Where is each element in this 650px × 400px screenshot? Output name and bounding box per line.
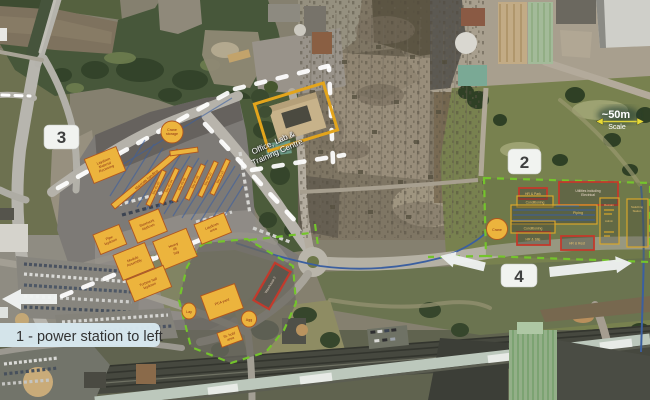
svg-text:HR & Park: HR & Park	[525, 192, 541, 196]
svg-text:Scale: Scale	[608, 124, 626, 131]
svg-text:Piping: Piping	[573, 211, 583, 215]
svg-text:3: 3	[57, 128, 66, 147]
svg-text:4: 4	[514, 267, 524, 286]
svg-text:storage: storage	[166, 132, 178, 136]
svg-text:~50m: ~50m	[602, 109, 631, 121]
svg-text:Lay: Lay	[186, 310, 192, 314]
svg-text:HR & Site: HR & Site	[526, 238, 541, 242]
svg-text:Crane: Crane	[492, 228, 502, 232]
svg-text:Remain: Remain	[604, 203, 614, 207]
svg-text:HR & Rest: HR & Rest	[569, 242, 585, 246]
svg-text:1 - power station to left: 1 - power station to left	[16, 329, 163, 345]
svg-text:Agg: Agg	[246, 318, 252, 322]
svg-text:Station: Station	[633, 209, 642, 213]
svg-text:Admin: Admin	[605, 219, 613, 223]
svg-text:Conditioning: Conditioning	[524, 227, 543, 231]
svg-text:2: 2	[520, 153, 529, 172]
svg-text:Electrical: Electrical	[581, 193, 595, 197]
svg-text:Conditioning: Conditioning	[526, 201, 545, 205]
